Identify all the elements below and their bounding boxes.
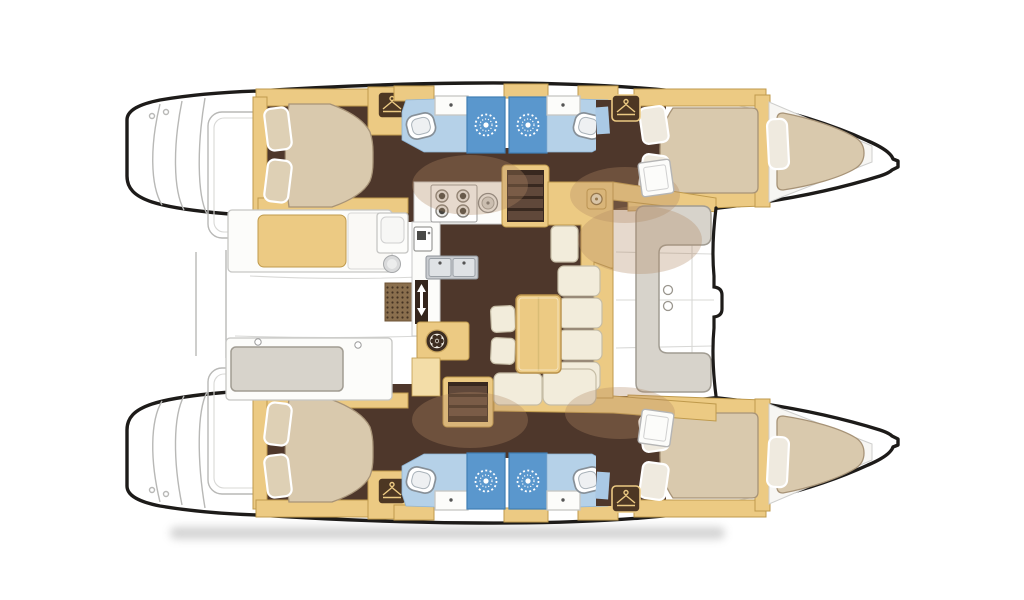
pillow (264, 107, 293, 152)
faucet-dot (561, 498, 564, 501)
cupholder-icon (664, 286, 673, 295)
pillow (767, 119, 790, 170)
sliding-door-arrows-icon (415, 280, 428, 324)
double-sink-icon (426, 256, 478, 279)
deck-fitting (355, 342, 361, 348)
deck-grate (385, 283, 415, 321)
wardrobe-icon (612, 486, 640, 512)
catamaran-floorplan (0, 0, 1024, 600)
deck-hatch-icon (638, 159, 674, 197)
pillow (639, 461, 670, 500)
washing-machine-icon (417, 322, 469, 360)
pillow (264, 454, 293, 499)
cockpit-bench-gray (231, 347, 343, 391)
sofa-cushion (559, 298, 602, 328)
double-bed (285, 104, 373, 207)
wardrobe-icon (612, 95, 640, 121)
double-bed (660, 413, 758, 498)
faucet-dot (449, 498, 452, 501)
pillow (264, 159, 293, 204)
floorplan-canvas (0, 0, 1024, 600)
galley-locker (412, 358, 440, 396)
deck-hatch-icon (638, 409, 674, 447)
pillow (264, 402, 293, 447)
aft-cockpit (226, 210, 425, 400)
sofa-cushion (558, 266, 600, 296)
pillow (639, 105, 670, 144)
fridge-lid (381, 217, 404, 243)
salon-table (516, 295, 561, 373)
pillow (767, 437, 790, 488)
faucet-dot (449, 103, 452, 106)
cupholder-icon (664, 302, 673, 311)
head-aft-port (394, 86, 468, 152)
icemaker-lid (387, 259, 397, 269)
loose-cushion (490, 305, 515, 332)
hull-window (595, 107, 610, 135)
deck-fitting (255, 339, 261, 345)
loose-cushion (490, 337, 515, 364)
head-aft-starboard (394, 454, 468, 520)
aft-cabin-starboard (253, 392, 428, 519)
hull-window (595, 472, 610, 500)
nav-seat (551, 226, 578, 262)
coffee-machine-icon (414, 227, 432, 251)
faucet-dot (561, 103, 564, 106)
aft-cabin-port (253, 87, 428, 214)
cockpit-bench-cushion (258, 215, 346, 267)
boat-shadow (170, 527, 725, 539)
double-bed (660, 108, 758, 193)
double-bed (285, 399, 373, 502)
sofa-cushion (559, 330, 602, 360)
